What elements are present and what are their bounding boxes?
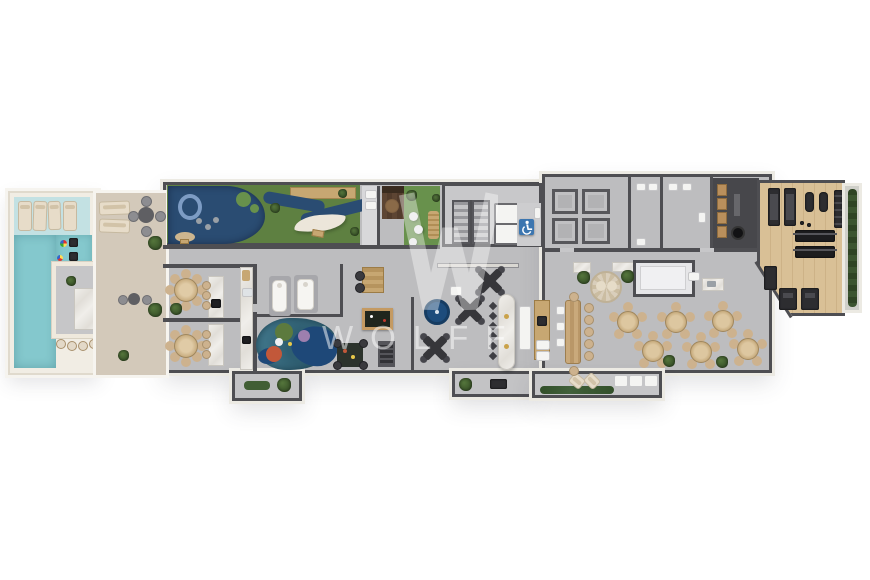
communal-stool xyxy=(556,322,565,331)
locker-bench xyxy=(734,194,740,216)
counter-sink xyxy=(242,288,253,297)
dining-table-set xyxy=(690,341,712,363)
in-pool-lounger xyxy=(47,201,61,230)
daybed-cushion xyxy=(607,281,617,291)
machine-pad xyxy=(558,224,572,238)
wall xyxy=(660,176,663,248)
coffee-machine xyxy=(537,316,547,326)
in-pool-lounger xyxy=(63,201,77,231)
play-dot xyxy=(288,342,292,346)
multi-station xyxy=(801,288,819,310)
spa-tub xyxy=(731,226,745,240)
treadmill xyxy=(768,188,780,226)
in-pool-table xyxy=(69,252,78,261)
playground-bush xyxy=(338,189,347,198)
cable-machine xyxy=(764,266,777,290)
rubber-green-mound xyxy=(250,204,259,213)
exercise-bike xyxy=(819,192,828,212)
cooktop xyxy=(242,336,251,344)
dining-table-set xyxy=(642,340,664,362)
treadmill xyxy=(784,188,796,226)
deck-plant xyxy=(148,303,162,317)
wall-corridor xyxy=(542,248,772,252)
gourmet-plant xyxy=(170,303,182,315)
machine-room xyxy=(582,218,610,244)
bar-stool xyxy=(78,341,88,351)
toilet xyxy=(648,183,658,191)
bed-pillow xyxy=(303,282,308,287)
in-pool-lounger xyxy=(18,201,32,231)
deck-chair xyxy=(155,211,166,222)
tray xyxy=(536,340,550,350)
dumbbell-rack xyxy=(834,190,843,228)
terrace-plant xyxy=(459,378,472,391)
watermark-text: WOLFF xyxy=(322,319,522,357)
kids-chair xyxy=(359,361,368,370)
kids-chair xyxy=(333,361,342,370)
communal-stool xyxy=(556,306,565,315)
sink xyxy=(365,201,377,210)
station-pad xyxy=(805,293,815,298)
multi-station xyxy=(779,288,797,310)
play-circle-orange xyxy=(266,346,282,362)
deck-lounger xyxy=(99,200,130,215)
barbell xyxy=(793,249,837,251)
door-gap xyxy=(560,248,574,252)
deck-chair xyxy=(118,295,128,305)
island-stool xyxy=(202,350,211,359)
gym-hedge xyxy=(848,189,857,307)
stepping-stone xyxy=(196,218,202,224)
communal-stool xyxy=(556,338,565,347)
wall xyxy=(628,176,631,248)
bed-pillow xyxy=(277,283,282,288)
station-pad xyxy=(783,293,793,298)
beach-ball xyxy=(57,255,63,261)
door-gap xyxy=(700,248,714,252)
cooktop xyxy=(211,299,221,308)
in-pool-table xyxy=(69,238,78,247)
bar-plant xyxy=(66,276,76,286)
terrace-bench xyxy=(244,381,270,390)
round-daybed xyxy=(590,271,622,303)
bar-stool xyxy=(67,341,77,351)
island-stool xyxy=(202,301,211,310)
toilet xyxy=(682,183,692,191)
locker xyxy=(717,226,727,238)
deck-chair xyxy=(128,211,139,222)
dining-table-set xyxy=(617,311,639,333)
deck-table xyxy=(138,207,154,223)
wall-spa-bottom xyxy=(253,314,343,317)
deck-chair xyxy=(141,196,152,207)
terrace-plant xyxy=(277,378,291,392)
dining-table-set xyxy=(665,311,687,333)
swimming-pool xyxy=(14,235,56,368)
wall-spa-right xyxy=(340,264,343,317)
wall-counter xyxy=(240,267,253,370)
dining-table-set xyxy=(712,310,734,332)
playground-bush xyxy=(350,227,359,236)
playground-bush xyxy=(270,203,280,213)
toilet xyxy=(365,190,377,199)
locker xyxy=(717,198,727,210)
dumbbell xyxy=(807,223,811,227)
dining-table-set xyxy=(737,338,759,360)
pantry-sink xyxy=(688,272,700,281)
sink xyxy=(698,212,706,223)
communal-chair xyxy=(584,327,594,337)
machine-pad xyxy=(558,195,572,208)
wall-gourmet-right xyxy=(253,264,257,304)
bar-stool xyxy=(56,339,66,349)
planter-box xyxy=(629,375,643,387)
deck-plant xyxy=(148,236,162,250)
weight-bench xyxy=(795,246,835,258)
dumbbell xyxy=(800,221,804,225)
deck-table-small xyxy=(128,293,140,305)
play-equipment xyxy=(180,239,189,244)
desk xyxy=(362,267,384,293)
serving-tray xyxy=(707,281,716,287)
amenities-floor-plan: WOLFF xyxy=(0,0,870,580)
wc-fixture xyxy=(534,207,541,219)
island-stool xyxy=(202,281,211,290)
watermark-logo xyxy=(398,190,498,318)
exercise-bike xyxy=(805,192,814,212)
gourmet-table xyxy=(174,278,198,302)
rubber-green-mound xyxy=(236,192,251,207)
desk-chair xyxy=(355,283,365,293)
stepping-stone xyxy=(205,224,211,230)
toilet xyxy=(636,183,646,191)
barbell xyxy=(793,233,837,235)
machine-pad xyxy=(588,224,604,238)
cutting-board xyxy=(242,270,250,281)
gourmet-table xyxy=(174,334,198,358)
locker xyxy=(717,212,727,224)
daybed-plant xyxy=(577,271,590,284)
communal-chair xyxy=(569,366,579,376)
sink xyxy=(636,238,646,246)
island-stool xyxy=(202,291,211,300)
machine-room xyxy=(582,189,610,214)
machine-pad xyxy=(588,195,604,208)
island-stool xyxy=(202,330,211,339)
communal-chair xyxy=(584,303,594,313)
pantry-floor xyxy=(640,266,686,290)
desk-chair xyxy=(355,271,365,281)
deck-lounger xyxy=(99,218,130,233)
planter-box xyxy=(644,375,658,387)
communal-chair xyxy=(569,292,579,302)
treadmill-belt xyxy=(786,194,794,220)
treadmill-belt xyxy=(770,194,778,220)
deck-chair xyxy=(141,226,152,237)
machine-room xyxy=(552,189,578,214)
play-pouf-white xyxy=(275,338,283,346)
machine-room xyxy=(552,218,578,244)
accessible-sign xyxy=(519,219,534,235)
planter-box xyxy=(614,375,628,387)
deck-plant xyxy=(118,350,129,361)
in-pool-lounger xyxy=(32,201,47,231)
toilet xyxy=(668,183,678,191)
communal-chair xyxy=(584,339,594,349)
dining-plant xyxy=(716,356,728,368)
daybed-cushion xyxy=(596,281,606,291)
dining-plant xyxy=(663,355,675,367)
tray xyxy=(536,351,550,361)
billiard-ball-white xyxy=(370,315,373,318)
communal-chair xyxy=(584,351,594,361)
weight-bench xyxy=(795,230,835,242)
play-circle-purple xyxy=(298,330,310,342)
locker xyxy=(717,184,727,196)
island-stool xyxy=(202,340,211,349)
communal-table xyxy=(565,300,581,364)
accessible-wheelchair-icon xyxy=(519,219,534,235)
communal-chair xyxy=(584,315,594,325)
coffee-table-round xyxy=(385,199,399,213)
beach-ball xyxy=(60,240,67,247)
rubber-swirl xyxy=(178,194,202,220)
daybed-plant xyxy=(621,270,634,283)
terrace-grill xyxy=(490,379,507,389)
stepping-stone xyxy=(213,217,219,223)
